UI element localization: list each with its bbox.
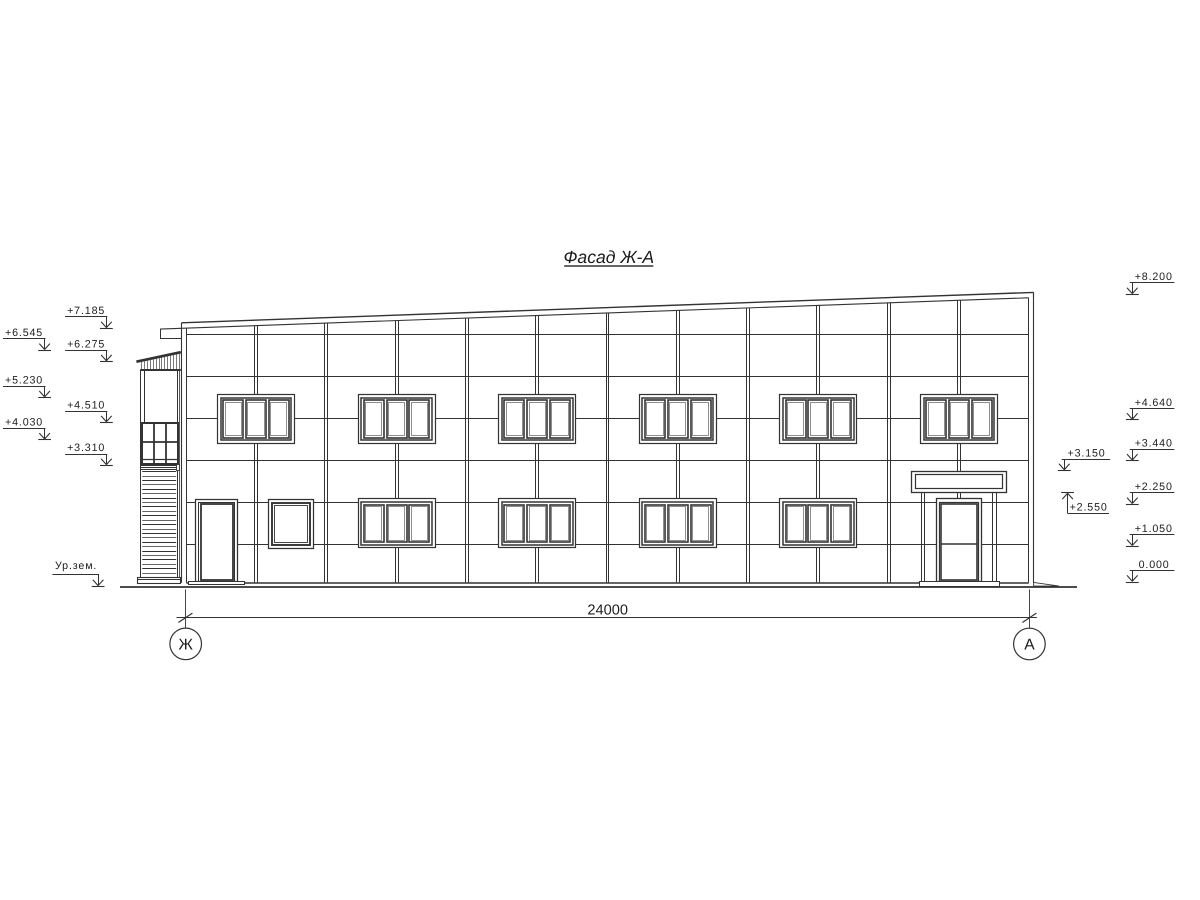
svg-text:+6.275: +6.275 — [67, 338, 105, 350]
svg-text:Ж: Ж — [178, 636, 193, 653]
svg-text:+3.310: +3.310 — [67, 442, 105, 454]
svg-text:+7.185: +7.185 — [67, 305, 105, 317]
svg-text:+5.230: +5.230 — [5, 375, 43, 387]
svg-text:+3.150: +3.150 — [1068, 447, 1106, 459]
svg-text:24000: 24000 — [587, 603, 628, 619]
svg-text:+3.440: +3.440 — [1135, 438, 1173, 450]
svg-text:+2.550: +2.550 — [1070, 502, 1108, 514]
svg-text:+6.545: +6.545 — [5, 327, 43, 339]
svg-text:+4.510: +4.510 — [67, 399, 105, 411]
svg-text:+1.050: +1.050 — [1135, 523, 1173, 535]
svg-text:+8.200: +8.200 — [1135, 271, 1173, 283]
svg-text:А: А — [1024, 637, 1035, 654]
svg-text:+4.640: +4.640 — [1135, 397, 1173, 409]
svg-text:Ур.зем.: Ур.зем. — [55, 560, 97, 572]
svg-text:0.000: 0.000 — [1139, 559, 1170, 571]
svg-text:Фасад Ж-А: Фасад Ж-А — [563, 247, 654, 267]
svg-text:+2.250: +2.250 — [1135, 481, 1173, 493]
svg-text:+4.030: +4.030 — [5, 417, 43, 429]
